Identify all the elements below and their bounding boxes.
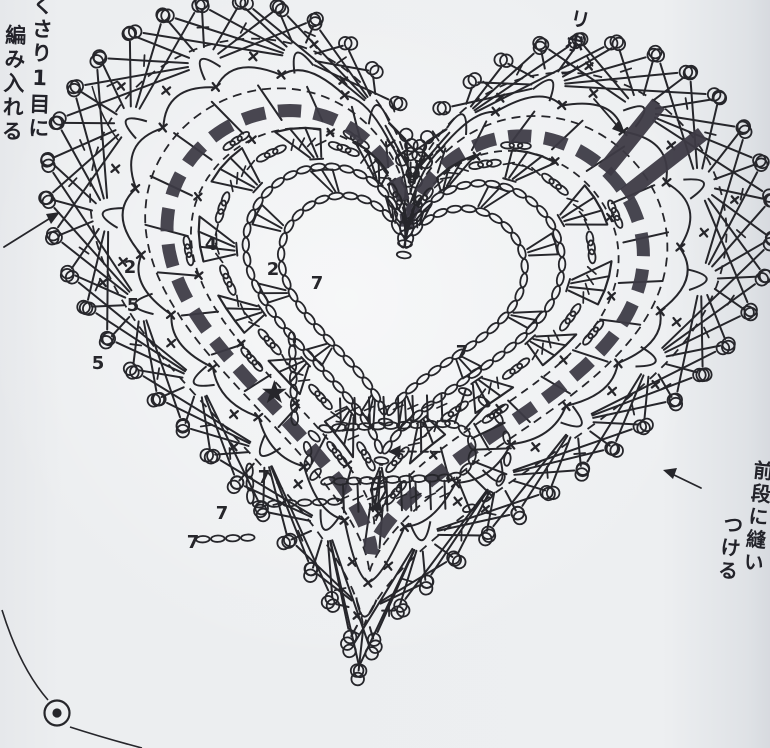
svg-text:2: 2 xyxy=(124,257,137,278)
svg-text:7: 7 xyxy=(187,532,200,553)
svg-text:7: 7 xyxy=(456,342,469,363)
annotation-chain-instruction-line2: 編み入れる xyxy=(0,24,25,145)
annotation-chain-instruction-line1: くさり1目に xyxy=(26,0,52,141)
svg-text:7: 7 xyxy=(311,273,324,294)
crochet-chart-page: 4277255777 ★ くさり1目に 編み入れる リボン 前段に縫い つける xyxy=(0,0,770,748)
svg-text:2: 2 xyxy=(267,259,280,280)
svg-text:7: 7 xyxy=(216,503,229,524)
start-star-symbol: ★ xyxy=(260,373,289,411)
svg-text:7: 7 xyxy=(258,467,271,488)
svg-text:5: 5 xyxy=(92,353,105,374)
svg-text:5: 5 xyxy=(127,295,140,316)
svg-text:4: 4 xyxy=(205,234,218,255)
crochet-diagram: 4277255777 ★ xyxy=(0,0,770,748)
